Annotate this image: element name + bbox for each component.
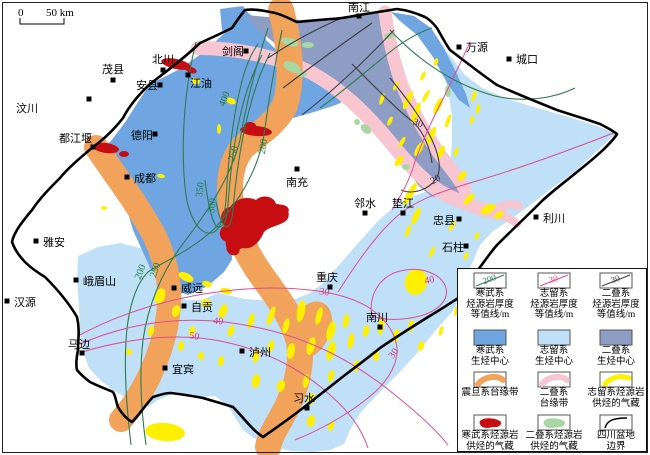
legend-item-label: 寒武系生烃中心 bbox=[471, 346, 509, 367]
city-label: 威远 bbox=[181, 282, 203, 295]
legend-item-label: 志留系烃源岩厚度等值线/m bbox=[530, 289, 578, 321]
city-marker bbox=[153, 132, 158, 137]
scale-zero-label: 0 bbox=[18, 7, 24, 19]
silurian-contour-value-label: 40 bbox=[213, 316, 224, 328]
city-marker bbox=[74, 278, 79, 283]
legend-item-label: 四川盆地边界 bbox=[597, 431, 635, 452]
city-label: 成都 bbox=[134, 172, 156, 185]
scale-bar: 0 50 km bbox=[18, 7, 74, 24]
line-swatch-icon bbox=[599, 414, 633, 431]
city-label: 重庆 bbox=[316, 270, 338, 284]
city-marker bbox=[87, 97, 92, 102]
legend-item: 志留系生烃中心 bbox=[522, 326, 586, 368]
legend-item-label: 震旦系台缘带 bbox=[461, 388, 518, 399]
fill-swatch-icon bbox=[599, 329, 633, 346]
city-marker bbox=[80, 351, 85, 356]
city-label: 江油 bbox=[190, 76, 212, 90]
city-marker bbox=[5, 299, 10, 304]
legend-item-label: 志留系烃源岩供烃的气藏 bbox=[587, 388, 644, 409]
legend-item: 四川盆地边界 bbox=[586, 411, 646, 453]
city-marker bbox=[158, 83, 163, 88]
silurian-sourced-gas-patch bbox=[126, 349, 132, 355]
fill-swatch-icon bbox=[473, 329, 507, 346]
scale-distance-label: 50 km bbox=[46, 7, 74, 19]
city-marker bbox=[357, 14, 362, 19]
legend-item: 30志留系烃源岩厚度等值线/m bbox=[522, 269, 586, 326]
cambrian-contour-value-label: 350 bbox=[194, 182, 207, 198]
map-legend: 200寒武系烃源岩厚度等值线/m30志留系烃源岩厚度等值线/m30二叠系烃源岩厚… bbox=[457, 268, 647, 452]
silurian-contour-value-label: 50 bbox=[189, 330, 200, 342]
city-marker bbox=[111, 78, 116, 83]
city-label: 南川 bbox=[366, 311, 388, 324]
legend-item: 二叠系台缘带 bbox=[522, 368, 586, 411]
blob-swatch-icon bbox=[473, 414, 507, 431]
city-label: 利川 bbox=[543, 212, 565, 225]
city-marker bbox=[34, 239, 39, 244]
silurian-sourced-gas-patch bbox=[198, 352, 204, 360]
city-label: 北川 bbox=[152, 53, 174, 66]
band-swatch-icon bbox=[473, 371, 507, 388]
city-marker bbox=[401, 211, 406, 216]
city-label: 都江堰 bbox=[59, 132, 92, 145]
city-label: 汶川 bbox=[16, 101, 38, 115]
city-label: 马边 bbox=[68, 338, 90, 351]
city-label: 万源 bbox=[466, 40, 488, 54]
city-marker bbox=[91, 145, 96, 150]
legend-item: 震旦系台缘带 bbox=[458, 368, 522, 411]
cambrian-sourced-gas-patch bbox=[119, 151, 129, 157]
silurian-contour-value-label: 30 bbox=[319, 286, 330, 298]
gasband-swatch-icon bbox=[599, 371, 633, 388]
city-label: 垫江 bbox=[392, 196, 414, 210]
legend-item: 200寒武系烃源岩厚度等值线/m bbox=[458, 269, 522, 326]
city-marker bbox=[125, 175, 130, 180]
city-marker bbox=[457, 217, 462, 222]
city-label: 南充 bbox=[286, 175, 308, 189]
legend-item-label: 寒武系烃源岩厚度等值线/m bbox=[466, 289, 514, 321]
city-label: 剑阁 bbox=[222, 44, 244, 58]
fill-swatch-icon bbox=[537, 329, 571, 346]
cambrian-contour-value-label: 300 bbox=[206, 198, 219, 214]
city-marker bbox=[464, 244, 469, 249]
city-label: 雅安 bbox=[43, 235, 65, 249]
city-marker bbox=[244, 49, 249, 54]
city-label: 泸州 bbox=[249, 346, 271, 359]
silurian-sourced-gas-patch bbox=[144, 421, 185, 442]
city-label: 邻水 bbox=[354, 197, 376, 210]
city-marker bbox=[186, 73, 191, 78]
legend-item: 寒武系烃源岩供烃的气藏 bbox=[458, 411, 522, 453]
legend-item-label: 二叠系烃源岩供烃的气藏 bbox=[525, 431, 582, 452]
silurian-sourced-gas-patch bbox=[421, 89, 431, 103]
city-marker bbox=[305, 406, 310, 411]
legend-item-label: 二叠系台缘带 bbox=[540, 388, 569, 409]
city-label: 忠县 bbox=[433, 214, 455, 227]
city-label: 峨眉山 bbox=[83, 275, 116, 288]
permian-sourced-gas-patch bbox=[354, 119, 360, 125]
silurian-sourced-gas-patch bbox=[444, 114, 453, 129]
sichuan-basin-map-figure: 汶川茂县北川安县江油剑阁南江万源城口都江堰德阳成都南充雅安峨眉山汉源马边威远自贡… bbox=[0, 0, 650, 455]
city-label: 汉源 bbox=[14, 295, 36, 309]
city-label: 石柱 bbox=[442, 240, 464, 254]
legend-item-label: 二叠系生烃中心 bbox=[597, 346, 635, 367]
contour-swatch-icon: 30 bbox=[599, 272, 633, 289]
city-marker bbox=[161, 68, 166, 73]
city-marker bbox=[172, 286, 177, 291]
contour-swatch-icon: 200 bbox=[473, 272, 507, 289]
silurian-sourced-gas-patch bbox=[101, 206, 107, 210]
city-marker bbox=[163, 366, 168, 371]
legend-item: 30二叠系烃源岩厚度等值线/m bbox=[586, 269, 646, 326]
city-marker bbox=[363, 211, 368, 216]
permian-sourced-gas-patch bbox=[402, 164, 410, 170]
city-marker bbox=[182, 304, 187, 309]
legend-item: 寒武系生烃中心 bbox=[458, 326, 522, 368]
legend-item-label: 寒武系烃源岩供烃的气藏 bbox=[461, 431, 518, 452]
city-marker bbox=[378, 325, 383, 330]
city-marker bbox=[534, 215, 539, 220]
city-label: 安县 bbox=[136, 78, 158, 92]
legend-item: 二叠系烃源岩供烃的气藏 bbox=[522, 411, 586, 453]
city-label: 习水 bbox=[293, 392, 315, 405]
city-marker bbox=[240, 349, 245, 354]
permian-sourced-gas-patch bbox=[445, 85, 451, 97]
legend-item: 二叠系生烃中心 bbox=[586, 326, 646, 368]
silurian-sourced-gas-patch bbox=[217, 124, 221, 134]
city-label: 茂县 bbox=[102, 62, 124, 76]
contour-swatch-icon: 30 bbox=[537, 272, 571, 289]
city-marker bbox=[295, 167, 300, 172]
city-marker bbox=[507, 57, 512, 62]
city-label: 宜宾 bbox=[172, 362, 194, 376]
legend-item-label: 二叠系烃源岩厚度等值线/m bbox=[592, 289, 640, 321]
city-label: 城口 bbox=[516, 53, 538, 66]
band-swatch-icon bbox=[537, 371, 571, 388]
legend-item-label: 志留系生烃中心 bbox=[535, 346, 573, 367]
city-label: 德阳 bbox=[131, 128, 153, 142]
silurian-sourced-gas-patch bbox=[419, 71, 427, 82]
legend-item: 志留系烃源岩供烃的气藏 bbox=[586, 368, 646, 411]
permian-sourced-gas-patch bbox=[302, 42, 314, 48]
blob-swatch-icon bbox=[537, 414, 571, 431]
city-label: 自贡 bbox=[191, 301, 213, 314]
silurian-sourced-gas-patch bbox=[438, 326, 444, 337]
city-marker bbox=[457, 45, 462, 50]
